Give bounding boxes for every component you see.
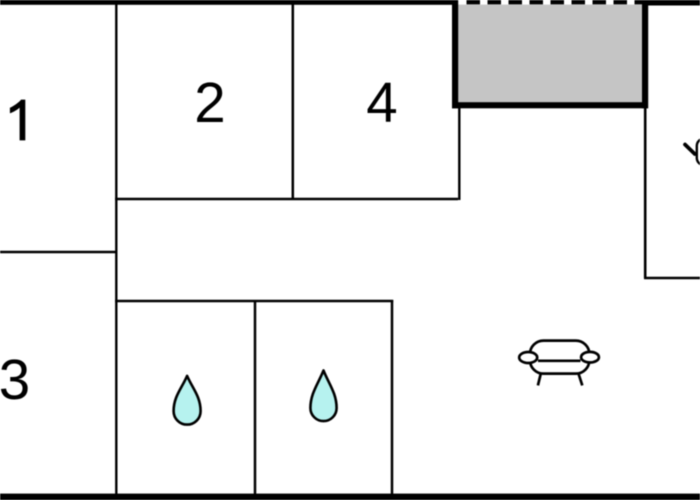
- svg-text:2: 2: [194, 71, 225, 134]
- svg-text:3: 3: [0, 348, 30, 411]
- svg-text:4: 4: [366, 71, 397, 134]
